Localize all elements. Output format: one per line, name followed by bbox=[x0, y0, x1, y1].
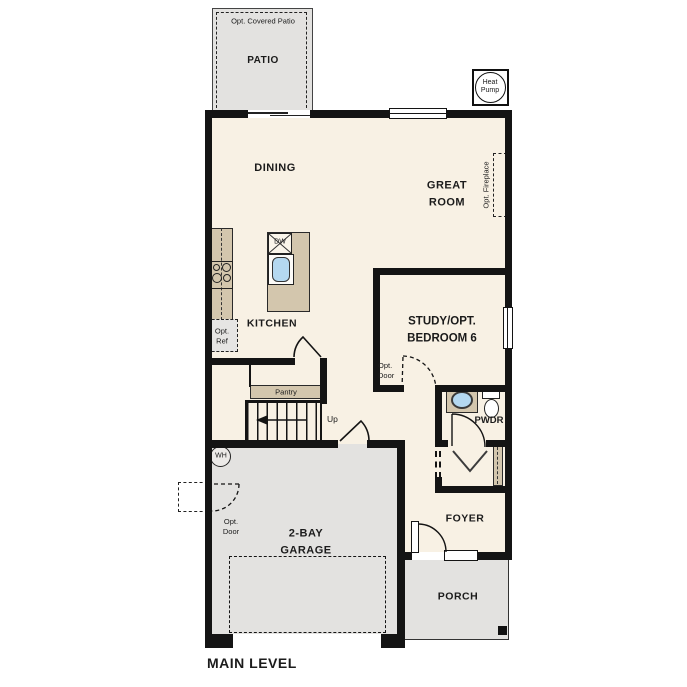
wall-pantry-stub bbox=[249, 362, 251, 387]
wall-garage-bottom-right bbox=[381, 634, 405, 648]
burner-icon bbox=[212, 273, 222, 283]
wall-study-bottom-right bbox=[441, 385, 512, 392]
burner-icon bbox=[223, 274, 231, 282]
foyer-label: FOYER bbox=[446, 512, 485, 525]
sink-basin bbox=[272, 257, 290, 282]
garage-door-dashed-outline bbox=[229, 556, 386, 633]
wall-closet-bottom bbox=[435, 486, 512, 493]
sliding-door-panel bbox=[270, 115, 310, 116]
great-room-label: GREAT ROOM bbox=[427, 178, 467, 211]
sliding-door-panel bbox=[248, 112, 288, 114]
stairs-up-label: Up bbox=[327, 414, 338, 425]
front-door-leaf bbox=[411, 521, 419, 553]
water-heater-label: WH bbox=[215, 453, 227, 462]
burner-icon bbox=[213, 264, 220, 271]
dishwasher-label: DW bbox=[274, 239, 286, 248]
wall-powder-divider-left bbox=[435, 440, 448, 447]
patio-label: PATIO bbox=[247, 55, 279, 68]
wall-exterior-left bbox=[205, 110, 212, 648]
wall-foyer-bottom-left bbox=[404, 552, 412, 560]
opt-door-stoop-box bbox=[178, 482, 208, 512]
window-study-line bbox=[507, 308, 508, 348]
study-bedroom-label: STUDY/OPT. BEDROOM 6 bbox=[407, 313, 477, 346]
porch-column bbox=[498, 626, 507, 635]
kitchen-label: KITCHEN bbox=[247, 317, 297, 330]
pantry-label: Pantry bbox=[275, 387, 297, 396]
wall-powder-divider-right bbox=[486, 440, 512, 447]
dining-label: DINING bbox=[254, 162, 296, 176]
wall-hall-corner bbox=[320, 358, 327, 404]
wall-garage-right bbox=[397, 440, 405, 648]
wall-foyer-bottom-right bbox=[477, 552, 512, 560]
closet-opening-dashed bbox=[435, 451, 441, 478]
garage-label: 2-BAY GARAGE bbox=[280, 526, 331, 559]
closet-shelf-line bbox=[497, 447, 498, 484]
wall-stair-top bbox=[245, 400, 322, 403]
powder-label: PWDR bbox=[474, 415, 503, 427]
powder-sink bbox=[451, 391, 473, 409]
wall-garage-bottom-left bbox=[205, 634, 233, 648]
stairs bbox=[245, 403, 322, 441]
wall-garage-top-left bbox=[205, 440, 338, 448]
burner-icon bbox=[222, 263, 231, 272]
front-door-threshold bbox=[444, 550, 478, 561]
plan-title: MAIN LEVEL bbox=[207, 655, 297, 673]
wall-study-top bbox=[373, 268, 512, 275]
opt-ref-label: Opt. Ref bbox=[215, 326, 229, 346]
heat-pump-label: Heat Pump bbox=[481, 79, 499, 95]
opt-fireplace-label: Opt. Fireplace bbox=[481, 161, 490, 208]
window-great-room-line bbox=[390, 113, 446, 114]
window-study bbox=[503, 307, 513, 349]
wall-study-bottom-left bbox=[373, 385, 404, 392]
study-opt-door-label: Opt. Door bbox=[378, 361, 394, 381]
wall-hall bbox=[207, 358, 295, 365]
floor-plan-canvas: Opt. Covered Patio PATIO Heat Pump DININ… bbox=[0, 0, 687, 687]
porch-label: PORCH bbox=[438, 590, 478, 603]
garage-opt-door-label: Opt. Door bbox=[223, 517, 239, 537]
opt-covered-patio-label: Opt. Covered Patio bbox=[231, 16, 295, 25]
wall-powder-left bbox=[435, 385, 442, 447]
closet-shelf bbox=[493, 445, 503, 486]
